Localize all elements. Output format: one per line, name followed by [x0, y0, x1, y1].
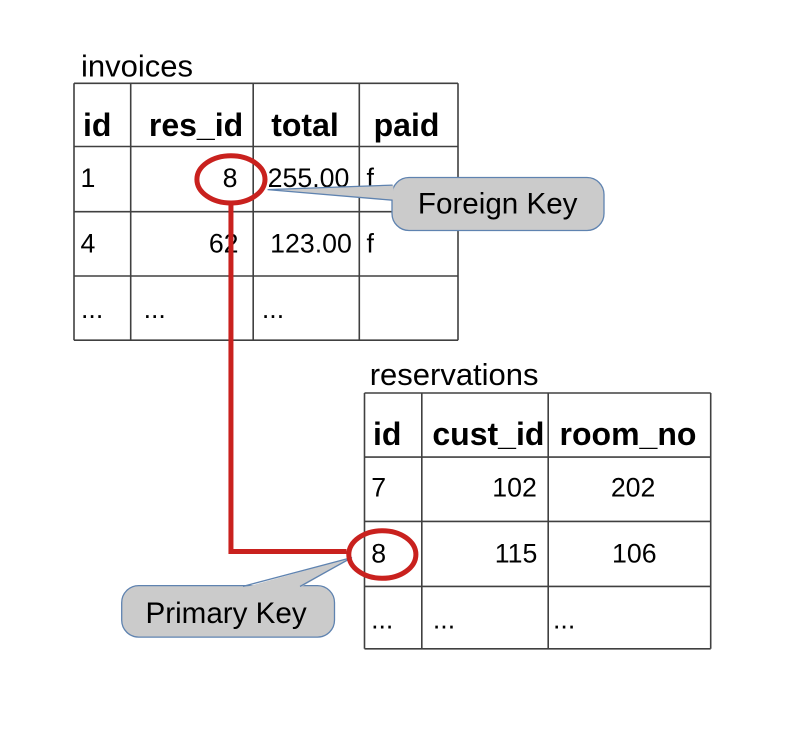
svg-text:room_no: room_no [560, 416, 697, 452]
svg-text:123.00: 123.00 [270, 228, 352, 258]
svg-text:res_id: res_id [149, 107, 243, 143]
svg-text:id: id [83, 107, 111, 143]
svg-text:...: ... [433, 604, 455, 634]
svg-text:cust_id: cust_id [432, 416, 544, 452]
svg-text:...: ... [371, 604, 393, 634]
svg-text:f: f [367, 228, 375, 258]
svg-text:...: ... [553, 604, 575, 634]
svg-text:...: ... [144, 294, 166, 324]
svg-text:7: 7 [371, 472, 386, 502]
svg-text:4: 4 [81, 228, 96, 258]
svg-text:202: 202 [611, 472, 656, 502]
svg-text:total: total [271, 107, 339, 143]
svg-text:paid: paid [374, 107, 440, 143]
svg-text:Primary Key: Primary Key [146, 597, 307, 630]
svg-text:115: 115 [495, 538, 538, 568]
svg-text:reservations: reservations [370, 357, 539, 392]
svg-text:Foreign Key: Foreign Key [418, 188, 578, 221]
svg-text:...: ... [262, 294, 284, 324]
svg-text:62: 62 [209, 228, 239, 258]
svg-text:8: 8 [371, 538, 386, 568]
svg-text:1: 1 [81, 163, 96, 193]
svg-text:106: 106 [612, 538, 657, 568]
svg-text:...: ... [81, 294, 103, 324]
svg-text:102: 102 [492, 472, 537, 502]
svg-text:8: 8 [223, 163, 238, 193]
svg-text:id: id [373, 416, 401, 452]
svg-text:invoices: invoices [81, 49, 193, 84]
